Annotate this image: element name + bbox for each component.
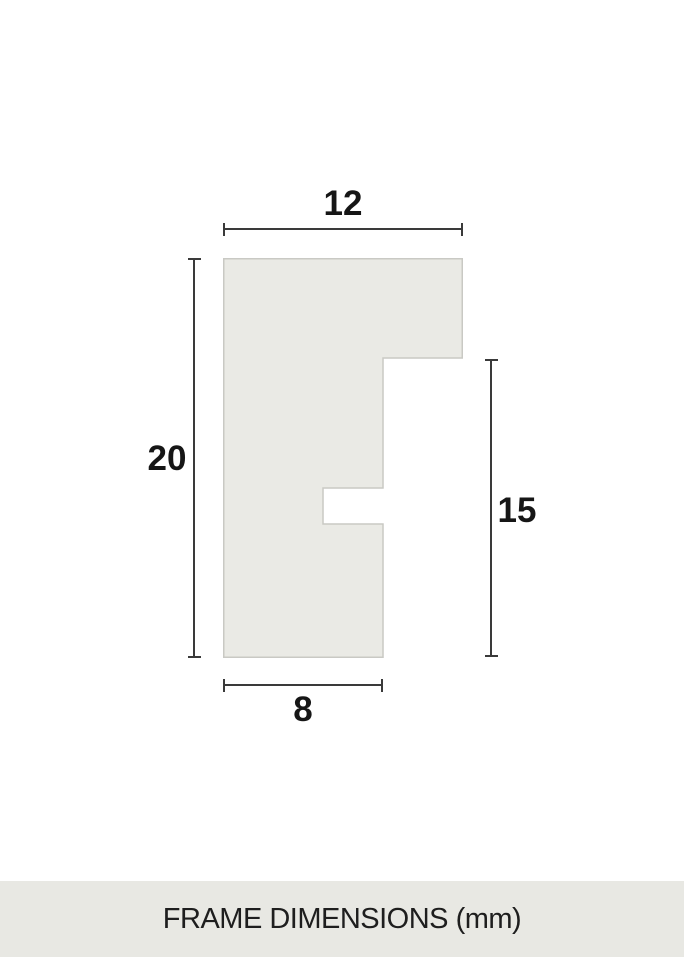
dimension-label-top-width: 12 [223,184,463,224]
dimension-label-right-height: 15 [489,491,545,531]
footer-bar: FRAME DIMENSIONS (mm) [0,881,684,957]
footer-title: FRAME DIMENSIONS (mm) [163,903,521,936]
dimension-label-left-height: 20 [139,439,195,479]
dimension-line-right-height [490,359,492,657]
dimension-line-left-height [193,258,195,658]
frame-profile-shape [223,258,463,658]
frame-profile-path [224,259,463,658]
dimension-line-top-width [223,228,463,230]
frame-dimensions-diagram: 12 20 15 8 FRAME DIMENSIONS (mm) [0,0,684,957]
dimension-line-bottom-width [223,684,383,686]
dimension-label-bottom-width: 8 [223,690,383,730]
